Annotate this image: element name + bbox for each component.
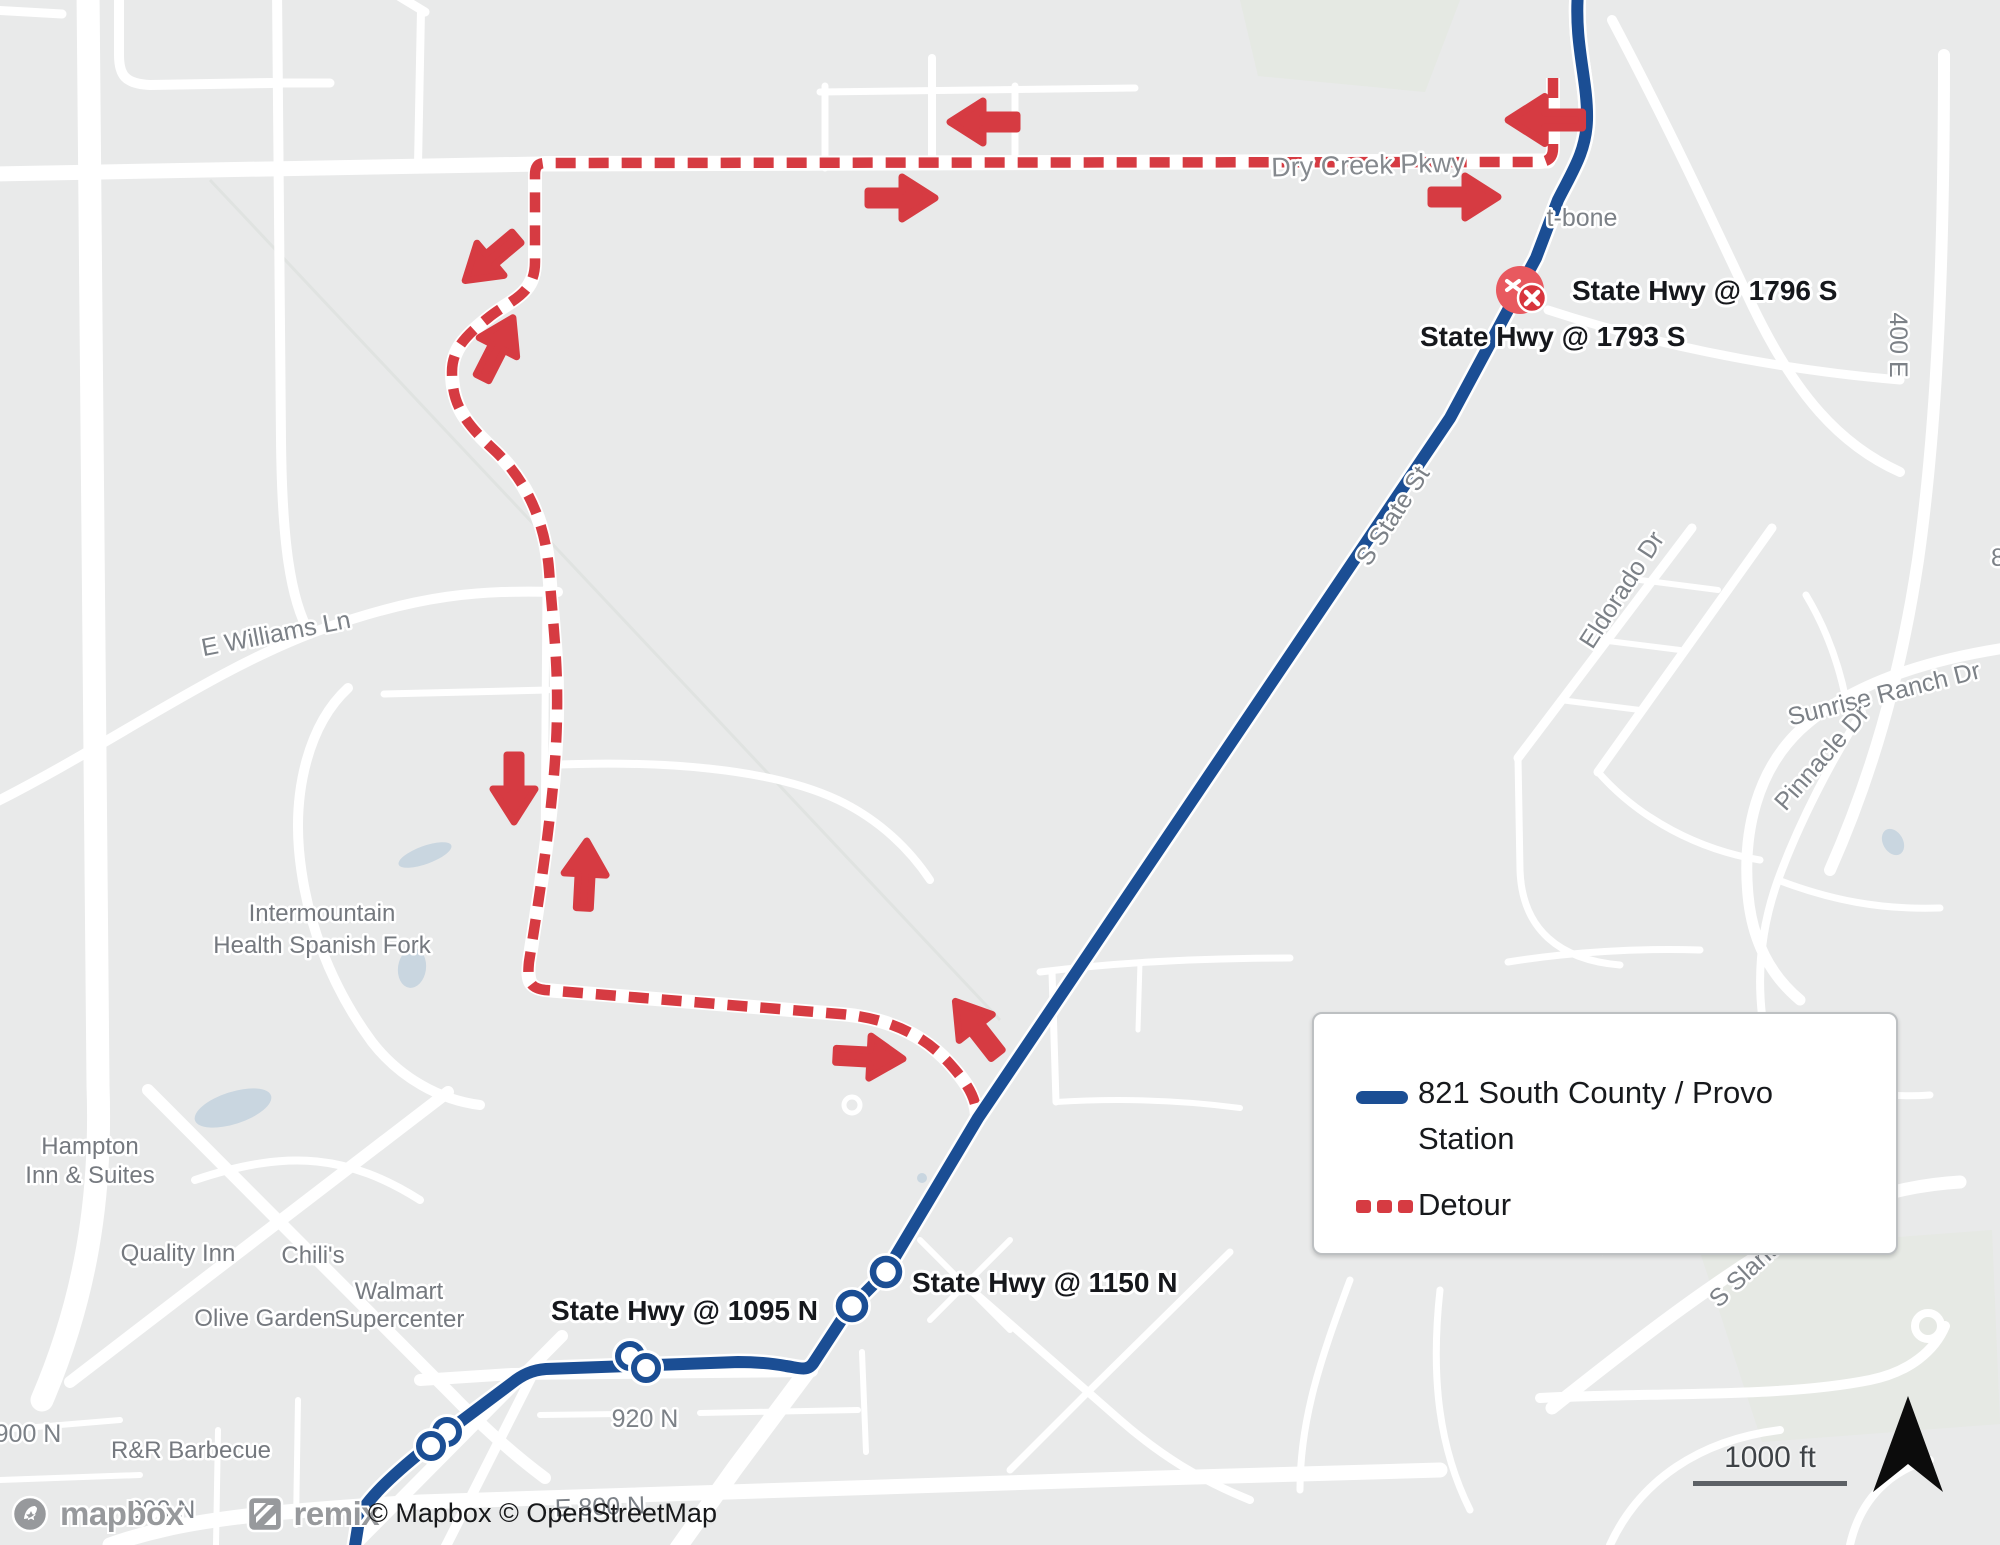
- street-label-920-n: 920 N: [612, 1405, 679, 1433]
- mapbox-logo-text[interactable]: mapbox: [60, 1495, 184, 1533]
- arrow-down-icon: [493, 755, 535, 822]
- poi-olive-garden: Olive Garden: [194, 1305, 335, 1332]
- stop-circle[interactable]: [835, 1289, 869, 1323]
- street-label-partial-8: 8: [1991, 544, 2000, 572]
- street-label-dry-creek: Dry Creek Pkwy: [1271, 147, 1466, 182]
- detour-path: [452, 78, 1553, 1116]
- remix-logo-text: remix: [294, 1495, 380, 1533]
- poi-intermountain-line2: Health Spanish Fork: [213, 932, 431, 959]
- stop-label-1150-n: State Hwy @ 1150 N: [912, 1267, 1177, 1298]
- poi-walmart-line2: Supercenter: [334, 1306, 465, 1333]
- stop-circle[interactable]: [630, 1352, 662, 1384]
- map-attribution[interactable]: © Mapbox © OpenStreetMap: [368, 1498, 717, 1529]
- stop-circle[interactable]: [869, 1255, 903, 1289]
- closed-stop-icon[interactable]: [1496, 266, 1546, 314]
- scale-label: 1000 ft: [1724, 1441, 1816, 1474]
- arrow-up-icon: [562, 840, 607, 909]
- poi-quality-inn: Quality Inn: [121, 1240, 236, 1267]
- street-label-400-e: 400 E: [1884, 312, 1912, 377]
- map-canvas[interactable]: Dry Creek Pkwy t-bone 400 E S State St E…: [0, 0, 2000, 1545]
- highway-road: [42, 0, 99, 1400]
- street-label-s-state-st: S State St: [1351, 461, 1436, 571]
- poi-rr-barbecue: R&R Barbecue: [111, 1437, 271, 1464]
- arrow-right-icon: [1431, 176, 1498, 218]
- stop-label-1095-n: State Hwy @ 1095 N: [551, 1295, 818, 1326]
- trail: [210, 180, 1000, 1020]
- logo-row: mapbox remix: [10, 1494, 379, 1534]
- stop-circle[interactable]: [415, 1430, 447, 1462]
- scale-bar: 1000 ft: [1693, 1441, 1847, 1486]
- map-stage: Dry Creek Pkwy t-bone 400 E S State St E…: [0, 0, 2000, 1545]
- legend: 821 South County / Provo Station Detour: [1312, 1012, 1898, 1255]
- legend-route-label-line1: 821 South County / Provo: [1418, 1070, 1773, 1116]
- arrow-right-icon: [868, 177, 935, 219]
- arrow-left-icon: [1509, 97, 1583, 143]
- poi-chilis: Chili's: [281, 1242, 344, 1269]
- stop-label-1796-s: State Hwy @ 1796 S: [1572, 275, 1837, 306]
- legend-route-swatch: [1356, 1091, 1408, 1104]
- arrow-left-icon: [950, 101, 1017, 143]
- detour-arrows: [452, 97, 1583, 1080]
- street-label-t-bone: t-bone: [1547, 204, 1618, 232]
- stop-label-1793-s: State Hwy @ 1793 S: [1420, 321, 1685, 352]
- legend-detour-label: Detour: [1418, 1182, 1511, 1228]
- street-label-900-n: 900 N: [0, 1420, 61, 1448]
- poi-hampton-line1: Hampton: [41, 1133, 138, 1160]
- poi-intermountain-line1: Intermountain: [249, 900, 396, 927]
- poi-walmart-line1: Walmart: [355, 1278, 444, 1305]
- mapbox-logo-icon[interactable]: [10, 1494, 50, 1534]
- legend-detour-swatch: [1356, 1200, 1413, 1213]
- arrow-up-right-icon: [464, 308, 532, 387]
- arrow-right-icon: [835, 1034, 904, 1079]
- legend-route-label: 821 South County / Provo Station: [1418, 1070, 1773, 1162]
- remix-logo-icon: [246, 1495, 284, 1533]
- poi-hampton-line2: Inn & Suites: [25, 1162, 154, 1189]
- legend-route-label-line2: Station: [1418, 1116, 1773, 1162]
- street-label-eldorado: Eldorado Dr: [1574, 526, 1670, 653]
- street-label-williams: E Williams Ln: [199, 606, 353, 662]
- arrow-down-left-icon: [452, 221, 530, 296]
